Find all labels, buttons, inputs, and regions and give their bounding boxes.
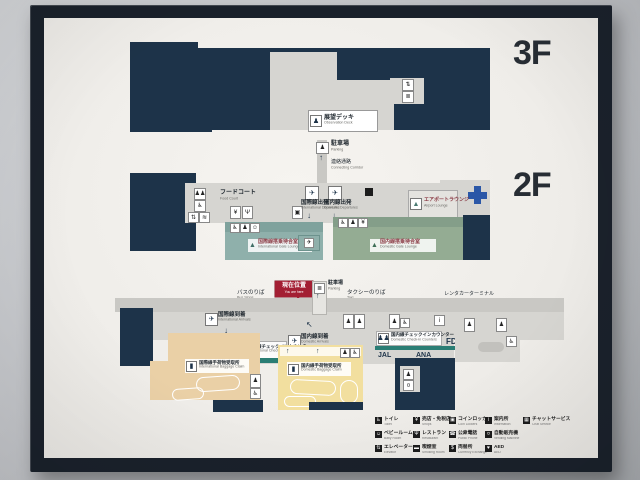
wheelchair-icon: ♿: [350, 348, 360, 358]
dom-checkin-label: ♟♟ 国内線チェックインカウンターDomestic Check-in Count…: [376, 331, 442, 346]
legend-item: ⇅エレベーターElevator: [375, 445, 413, 457]
stairs-icon: ≣: [402, 91, 414, 103]
legend-item: $両替所Currency Exchange: [449, 445, 487, 457]
toilet-icon: ♟: [496, 318, 507, 332]
baggage-icon: ▮: [186, 361, 197, 372]
restaurant-icon: Ψ: [242, 206, 253, 219]
baggage-carousel: [340, 380, 358, 404]
airport-lounge-label: ▲ エアポートラウンジAirport Lounge: [408, 190, 458, 218]
down-arrow-icon: ↓: [307, 212, 311, 220]
legend-item: i案内所Information: [485, 417, 523, 429]
transfer-icon: ✈: [304, 238, 314, 248]
floor1-south-block-west: [213, 400, 263, 412]
baby-room-icon: ☺: [375, 431, 382, 438]
legend-item: ♥AEDAED: [485, 445, 523, 457]
curbside-road: [115, 298, 564, 312]
mountain-icon: ▲: [371, 242, 378, 249]
elevator-icon: ⇅: [188, 212, 199, 223]
toilet-icon: ♟: [464, 318, 475, 332]
baggage-carousel: [172, 387, 205, 401]
baggage-carousel: [290, 379, 337, 396]
departure-plane-icon: ✈: [328, 186, 342, 200]
legend-item: ▣コインロッカーCoin Lockers: [449, 417, 487, 429]
toilet-icon: ♟: [340, 348, 350, 358]
dom-checkin-counter: [375, 346, 463, 350]
toilet-icon: ♟: [343, 314, 354, 329]
information-icon: i: [485, 417, 492, 424]
departure-plane-icon: ✈: [305, 186, 319, 200]
toilet-icon: ♟: [250, 374, 261, 388]
currency-exchange-icon: $: [449, 445, 456, 452]
escalator-icon: ≋: [199, 212, 210, 223]
wheelchair-icon: ♿: [338, 218, 348, 228]
coin-locker-icon: ▣: [449, 417, 456, 424]
legend-item: ▬喫煙室Smoking Room: [413, 445, 451, 457]
shop-icon: ¥: [413, 417, 420, 424]
intl-arrivals-label: 国際線到着 International Arrivals: [218, 312, 272, 324]
parking-label-1f: 駐車場 Parking: [328, 281, 348, 293]
floor-label-2f: 2F: [513, 166, 551, 205]
counter-staff-icon: ♟♟: [378, 333, 389, 344]
toilet-icon: ♟♟: [194, 188, 206, 200]
observation-deck-label: ♟ 展望デッキObservation Deck: [308, 110, 378, 132]
nursing-icon: ☺: [250, 223, 260, 233]
legend-item: ♿トイレToilet: [375, 417, 413, 429]
intl-baggage-label: ▮ 国際線手荷物受取所International Baggage Claim: [185, 359, 249, 373]
arrival-plane-icon: ✈: [205, 313, 218, 326]
toilet-icon: ♟: [403, 369, 414, 380]
up-arrow-icon: ↑: [316, 293, 320, 300]
baggage-icon: ▮: [288, 364, 299, 375]
vending-icon: ¤: [403, 380, 414, 391]
elevator-icon: ⇅: [402, 79, 414, 91]
toilet-icon: ♟: [240, 223, 250, 233]
observation-person-icon: ♟: [310, 115, 322, 127]
lounge-icon: ▲: [410, 198, 422, 210]
photo-spot-icon: [365, 188, 373, 196]
phone-icon: ☎: [449, 431, 456, 438]
mountain-icon: ▲: [249, 242, 256, 249]
corridor-label: 連絡通路 Connecting Corridor: [331, 160, 385, 172]
elevator-icon: ⇅: [375, 445, 382, 452]
vending-icon: ¤: [485, 431, 492, 438]
parking-label: 駐車場 Parking: [331, 141, 351, 154]
up-arrow-icon: ↑: [286, 348, 290, 355]
airline-jal: JAL: [378, 352, 391, 359]
escalator-shape: [478, 342, 504, 352]
up-left-arrow-icon: ↖: [306, 321, 313, 329]
toilet-icon: ♟: [389, 314, 400, 329]
toilet-icon: ♟: [354, 314, 365, 329]
floor2-east-block: [463, 215, 490, 260]
legend-item: ¤自動販売機Vending Machine: [485, 431, 523, 443]
legend-item: ☺ベビールームBaby Room: [375, 431, 413, 443]
up-arrow-icon: ↑: [316, 348, 320, 355]
toilet-icon: ♟: [348, 218, 358, 228]
transfer-box: ✈: [298, 235, 320, 251]
dom-baggage-label: ▮ 国内線手荷物受取所Domestic Baggage Claim: [287, 362, 351, 376]
restaurant-icon: Ψ: [413, 431, 420, 438]
floor1-south-block: [309, 402, 363, 410]
you-are-here-badge: 現在位置 You are here: [275, 281, 313, 297]
shop-icon: ¥: [230, 206, 241, 219]
wheelchair-icon: ♿: [230, 223, 240, 233]
aed-icon: ♥: [485, 445, 492, 452]
qr-chat-icon: ▦: [523, 417, 530, 424]
legend-item: ☎公衆電話Public Phone: [449, 431, 487, 443]
info-icon: i: [434, 315, 445, 326]
food-court-label: フードコート Food Court: [220, 190, 256, 203]
floor1-west-block: [120, 308, 153, 366]
shop-icon: ¥: [358, 218, 368, 228]
wheelchair-icon: ♿: [506, 336, 517, 347]
wheelchair-icon: ♿: [250, 388, 261, 399]
clinic-cross-icon: [468, 186, 487, 204]
wheelchair-icon: ♿: [400, 318, 410, 328]
legend-item: ▦チャットサービスChat Service: [523, 417, 561, 429]
smoking-icon: ▬: [413, 445, 420, 452]
wheelchair-icon: ♿: [194, 200, 206, 212]
legend-item: ¥売店・免税店Shops: [413, 417, 451, 429]
floor-label-3f: 3F: [513, 34, 551, 73]
map-sign-panel: 3F ⇅ ≣ ♟ 展望デッキObservation Deck ♟ ↑ 駐車場 P…: [44, 18, 598, 458]
photo-frame: 3F ⇅ ≣ ♟ 展望デッキObservation Deck ♟ ↑ 駐車場 P…: [30, 5, 612, 472]
up-arrow-icon: ↑: [319, 154, 323, 162]
dom-gate-lounge-label: ▲ 国内線搭乗待合室Domestic Gate Lounge: [370, 239, 436, 252]
legend-item: ΨレストランRestaurant: [413, 431, 451, 443]
toilet-icon: ♿: [375, 417, 382, 424]
